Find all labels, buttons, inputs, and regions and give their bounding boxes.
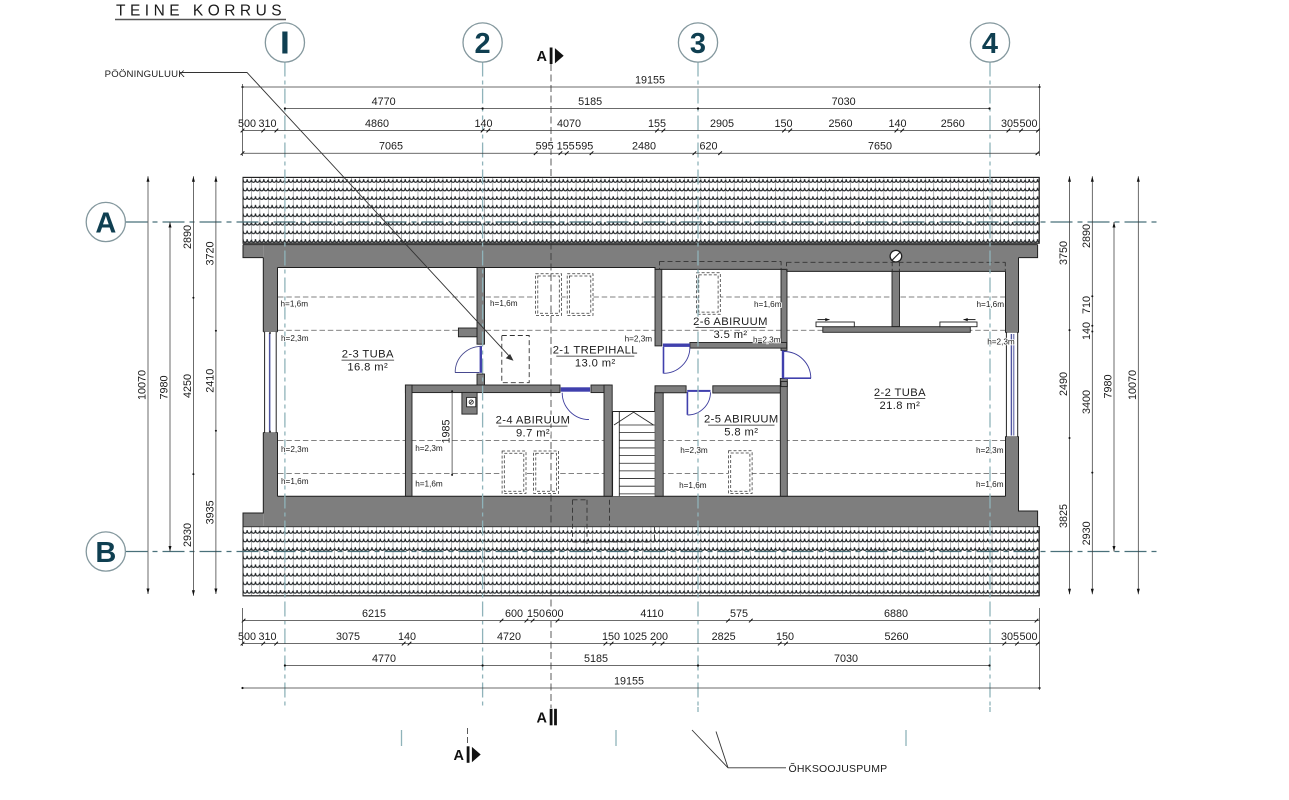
svg-text:2490: 2490 xyxy=(1058,372,1070,396)
svg-text:21.8 m²: 21.8 m² xyxy=(880,400,921,412)
svg-text:ÕHKSOOJUSPUMP: ÕHKSOOJUSPUMP xyxy=(789,762,888,775)
svg-text:h=2,3m: h=2,3m xyxy=(987,337,1015,346)
svg-text:4770: 4770 xyxy=(372,653,396,665)
svg-text:h=2,3m: h=2,3m xyxy=(680,446,708,455)
svg-text:305: 305 xyxy=(1001,631,1019,643)
svg-text:2-6 ABIRUUM: 2-6 ABIRUUM xyxy=(693,316,768,328)
svg-text:140: 140 xyxy=(474,118,492,130)
svg-text:1985: 1985 xyxy=(441,419,453,443)
svg-text:h=2,3m: h=2,3m xyxy=(625,334,653,343)
svg-text:h=1,6m: h=1,6m xyxy=(281,299,309,308)
svg-text:595: 595 xyxy=(536,141,554,153)
svg-text:3720: 3720 xyxy=(204,241,216,265)
svg-text:h=1,6m: h=1,6m xyxy=(977,300,1005,309)
svg-text:5185: 5185 xyxy=(584,653,608,665)
svg-text:A: A xyxy=(454,748,465,764)
svg-text:140: 140 xyxy=(1081,322,1093,340)
svg-text:2-3 TUBA: 2-3 TUBA xyxy=(342,349,394,361)
svg-text:2: 2 xyxy=(475,28,491,60)
svg-text:150: 150 xyxy=(776,631,794,643)
svg-text:10070: 10070 xyxy=(1127,370,1139,400)
svg-text:h=2,3m: h=2,3m xyxy=(281,445,309,454)
svg-text:310: 310 xyxy=(258,631,276,643)
svg-text:150: 150 xyxy=(602,631,620,643)
svg-text:h=2,3m: h=2,3m xyxy=(281,334,309,343)
svg-text:155: 155 xyxy=(557,141,575,153)
svg-text:3.5 m²: 3.5 m² xyxy=(713,329,747,341)
svg-text:9.7 m²: 9.7 m² xyxy=(516,428,550,440)
svg-text:6880: 6880 xyxy=(884,608,908,620)
svg-text:1025: 1025 xyxy=(623,631,647,643)
svg-text:7030: 7030 xyxy=(832,96,856,108)
svg-text:2890: 2890 xyxy=(1081,224,1093,248)
svg-text:13.0 m²: 13.0 m² xyxy=(575,358,616,370)
svg-text:2480: 2480 xyxy=(632,141,656,153)
svg-text:6215: 6215 xyxy=(362,608,386,620)
svg-text:16.8 m²: 16.8 m² xyxy=(347,362,388,374)
svg-text:h=2,3m: h=2,3m xyxy=(976,446,1004,455)
svg-text:2930: 2930 xyxy=(1081,521,1093,545)
svg-text:19155: 19155 xyxy=(635,75,665,87)
svg-text:2560: 2560 xyxy=(941,118,965,130)
svg-text:7980: 7980 xyxy=(1103,374,1115,398)
svg-text:620: 620 xyxy=(699,141,717,153)
svg-text:2890: 2890 xyxy=(182,225,194,249)
svg-text:140: 140 xyxy=(398,631,416,643)
svg-text:7030: 7030 xyxy=(834,653,858,665)
svg-text:h=2,3m: h=2,3m xyxy=(415,444,443,453)
svg-text:7650: 7650 xyxy=(868,141,892,153)
svg-text:500: 500 xyxy=(1019,118,1037,130)
svg-text:2-5 ABIRUUM: 2-5 ABIRUUM xyxy=(704,414,779,426)
svg-text:10070: 10070 xyxy=(137,370,149,400)
svg-text:3400: 3400 xyxy=(1081,390,1093,414)
svg-text:310: 310 xyxy=(258,118,276,130)
svg-text:200: 200 xyxy=(650,631,668,643)
svg-text:7065: 7065 xyxy=(379,141,403,153)
svg-text:h=1,6m: h=1,6m xyxy=(976,480,1004,489)
svg-text:595: 595 xyxy=(575,141,593,153)
svg-text:305: 305 xyxy=(1001,118,1019,130)
svg-text:h=1,6m: h=1,6m xyxy=(415,480,443,489)
svg-text:500: 500 xyxy=(238,118,256,130)
svg-text:5.8 m²: 5.8 m² xyxy=(724,427,758,439)
svg-text:150: 150 xyxy=(527,608,545,620)
svg-text:2905: 2905 xyxy=(710,118,734,130)
svg-text:2-2 TUBA: 2-2 TUBA xyxy=(874,387,926,399)
svg-text:4070: 4070 xyxy=(557,118,581,130)
svg-text:A: A xyxy=(537,710,548,726)
svg-text:3075: 3075 xyxy=(336,631,360,643)
svg-text:h=1,6m: h=1,6m xyxy=(281,477,309,486)
svg-text:5185: 5185 xyxy=(578,96,602,108)
svg-text:710: 710 xyxy=(1081,296,1093,314)
svg-text:600: 600 xyxy=(505,608,523,620)
svg-text:A: A xyxy=(537,49,548,65)
svg-text:5260: 5260 xyxy=(884,631,908,643)
svg-text:h=1,6m: h=1,6m xyxy=(754,300,782,309)
svg-text:3750: 3750 xyxy=(1058,241,1070,265)
svg-text:h=1,6m: h=1,6m xyxy=(679,481,707,490)
svg-text:500: 500 xyxy=(238,631,256,643)
svg-text:TEINE KORRUS: TEINE KORRUS xyxy=(116,3,286,20)
svg-text:150: 150 xyxy=(774,118,792,130)
svg-text:500: 500 xyxy=(1019,631,1037,643)
svg-text:3935: 3935 xyxy=(204,500,216,524)
svg-text:600: 600 xyxy=(545,608,563,620)
svg-text:2930: 2930 xyxy=(182,523,194,547)
svg-text:4250: 4250 xyxy=(182,374,194,398)
svg-text:2410: 2410 xyxy=(204,369,216,393)
svg-text:3: 3 xyxy=(690,28,706,60)
svg-text:2-1 TREPIHALL: 2-1 TREPIHALL xyxy=(553,345,638,357)
svg-text:2560: 2560 xyxy=(828,118,852,130)
svg-text:2-4 ABIRUUM: 2-4 ABIRUUM xyxy=(496,415,571,427)
svg-text:2825: 2825 xyxy=(712,631,736,643)
svg-text:B: B xyxy=(95,537,116,569)
svg-text:PÖÖNINGULUUK: PÖÖNINGULUUK xyxy=(105,69,186,80)
svg-text:7980: 7980 xyxy=(159,375,171,399)
svg-text:575: 575 xyxy=(730,608,748,620)
svg-text:h=2,3m: h=2,3m xyxy=(753,335,781,344)
svg-text:4: 4 xyxy=(982,28,998,60)
svg-text:3825: 3825 xyxy=(1058,504,1070,528)
svg-text:19155: 19155 xyxy=(614,676,644,688)
svg-text:4110: 4110 xyxy=(640,608,663,620)
svg-text:4860: 4860 xyxy=(365,118,389,130)
svg-text:h=1,6m: h=1,6m xyxy=(490,299,518,308)
svg-text:4770: 4770 xyxy=(372,96,396,108)
svg-text:A: A xyxy=(95,207,116,239)
svg-text:4720: 4720 xyxy=(497,631,521,643)
svg-text:155: 155 xyxy=(648,118,666,130)
svg-text:140: 140 xyxy=(888,118,906,130)
